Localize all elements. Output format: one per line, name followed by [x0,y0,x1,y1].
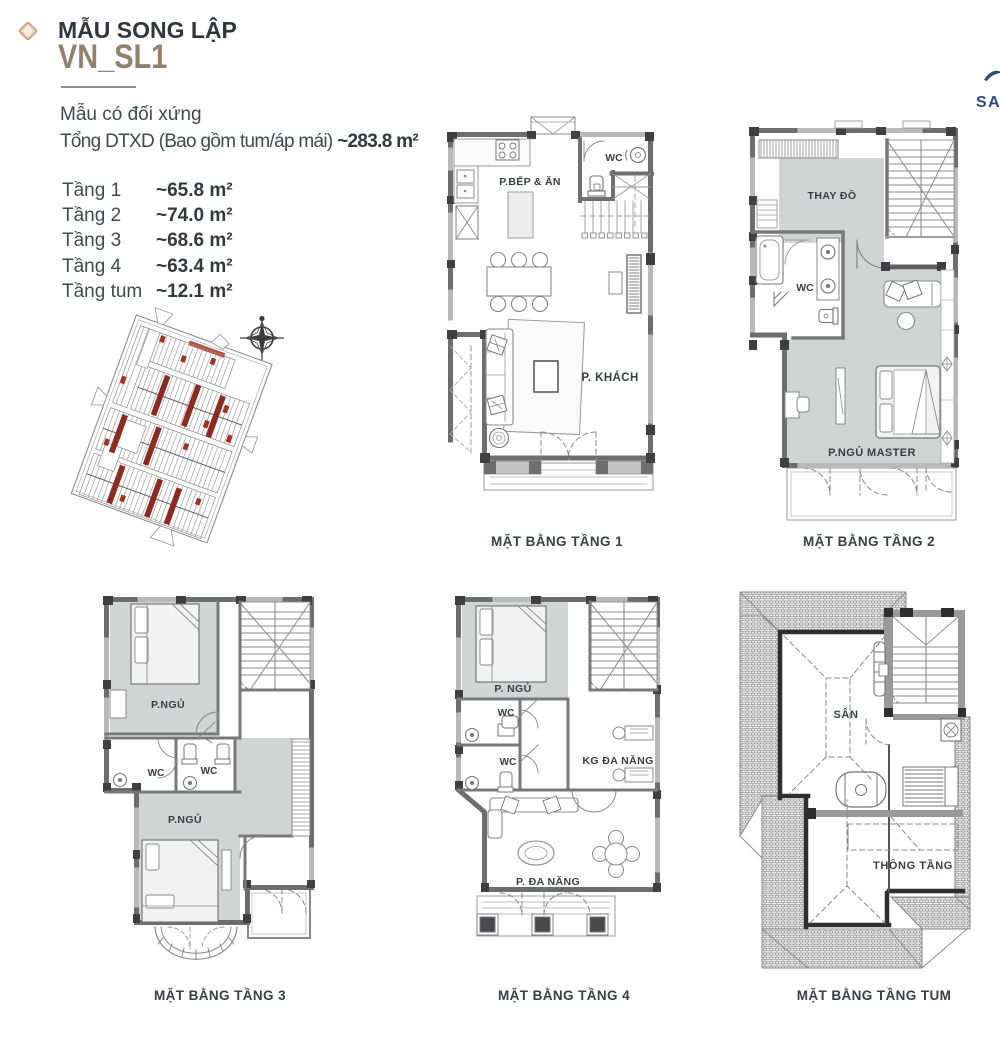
svg-text:P.NGỦ: P.NGỦ [168,813,202,826]
svg-text:P. ĐA NĂNG: P. ĐA NĂNG [516,875,580,888]
svg-text:WC: WC [605,152,623,164]
svg-text:P. KHÁCH: P. KHÁCH [581,371,638,384]
svg-text:P. NGỦ: P. NGỦ [494,682,531,695]
svg-text:WC: WC [796,282,814,294]
svg-text:KG ĐA NĂNG: KG ĐA NĂNG [582,754,653,767]
svg-text:THÔNG TẦNG: THÔNG TẦNG [873,859,953,872]
svg-text:SÂN: SÂN [833,708,858,721]
svg-text:P.NGỦ MASTER: P.NGỦ MASTER [828,446,916,459]
svg-text:P.BẾP & ĂN: P.BẾP & ĂN [499,175,561,188]
svg-text:WC: WC [201,766,218,777]
svg-text:THAY ĐỒ: THAY ĐỒ [808,189,857,202]
svg-text:P.NGỦ: P.NGỦ [151,698,185,711]
svg-text:WC: WC [500,757,517,768]
svg-text:WC: WC [148,768,165,779]
svg-text:WC: WC [498,708,515,719]
